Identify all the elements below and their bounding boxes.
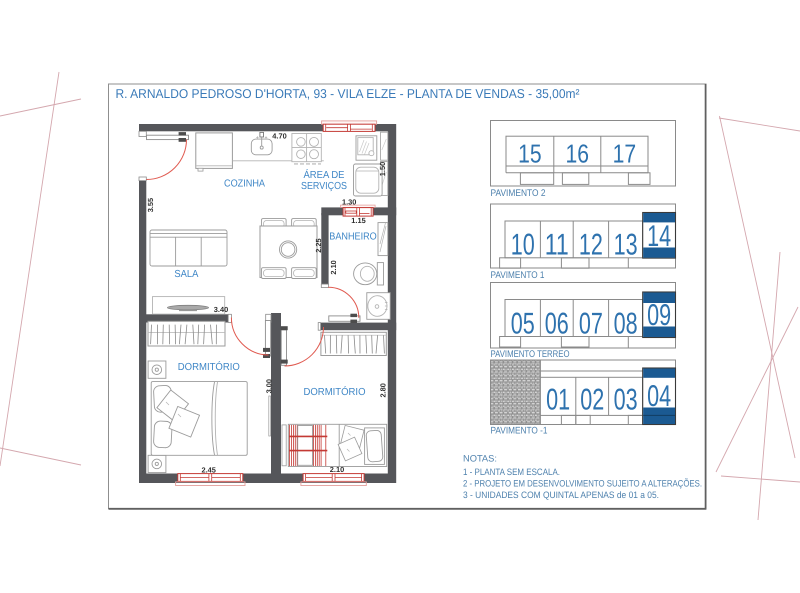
svg-text:4.70: 4.70: [272, 131, 286, 140]
svg-text:01: 01: [546, 383, 570, 416]
svg-text:1.15: 1.15: [351, 216, 365, 225]
svg-text:2 - PROJETO EM DESENVOLVIMENTO: 2 - PROJETO EM DESENVOLVIMENTO SUJEITO A…: [463, 478, 702, 489]
svg-text:2.25: 2.25: [314, 238, 323, 252]
svg-text:12: 12: [579, 228, 603, 261]
svg-text:1.50: 1.50: [378, 162, 387, 176]
svg-text:1 - PLANTA SEM ESCALA.: 1 - PLANTA SEM ESCALA.: [463, 467, 560, 477]
svg-text:15: 15: [518, 139, 542, 169]
svg-text:COZINHA: COZINHA: [224, 179, 265, 190]
svg-text:3.40: 3.40: [214, 305, 228, 314]
svg-text:02: 02: [580, 383, 604, 416]
svg-text:08: 08: [614, 308, 638, 341]
svg-text:2.10: 2.10: [330, 465, 344, 474]
svg-text:PAVIMENTO TERREO: PAVIMENTO TERREO: [491, 349, 570, 360]
svg-text:03: 03: [614, 383, 638, 416]
svg-text:1.30: 1.30: [342, 198, 356, 207]
svg-text:3 - UNIDADES COM QUINTAL APENA: 3 - UNIDADES COM QUINTAL APENAS de 01 a …: [463, 490, 659, 500]
svg-text:SERVIÇOS: SERVIÇOS: [301, 181, 347, 192]
svg-text:16: 16: [566, 139, 590, 169]
svg-text:PAVIMENTO 1: PAVIMENTO 1: [491, 270, 545, 281]
svg-text:R. ARNALDO PEDROSO D'HORTA, 93: R. ARNALDO PEDROSO D'HORTA, 93 - VILA EL…: [116, 86, 581, 101]
svg-text:BANHEIRO: BANHEIRO: [329, 231, 377, 242]
svg-text:3.00: 3.00: [265, 379, 274, 393]
svg-text:2.80: 2.80: [378, 383, 387, 397]
svg-text:09: 09: [647, 299, 671, 332]
svg-text:17: 17: [613, 139, 637, 169]
svg-text:ÁREA DE: ÁREA DE: [304, 169, 345, 181]
svg-text:NOTAS:: NOTAS:: [463, 454, 497, 464]
svg-text:3.55: 3.55: [146, 198, 155, 212]
svg-text:2.10: 2.10: [329, 260, 338, 274]
svg-text:06: 06: [545, 308, 569, 341]
svg-text:11: 11: [545, 228, 569, 261]
svg-text:SALA: SALA: [174, 269, 198, 280]
svg-text:14: 14: [647, 220, 671, 253]
svg-text:DORMITÓRIO: DORMITÓRIO: [178, 361, 240, 373]
svg-text:05: 05: [511, 308, 535, 341]
svg-text:04: 04: [647, 380, 671, 413]
svg-text:13: 13: [614, 228, 638, 261]
svg-text:2.45: 2.45: [202, 466, 216, 475]
svg-text:PAVIMENTO -1: PAVIMENTO -1: [491, 425, 548, 436]
svg-text:PAVIMENTO 2: PAVIMENTO 2: [491, 188, 546, 199]
svg-text:10: 10: [511, 228, 535, 261]
svg-text:DORMITÓRIO: DORMITÓRIO: [304, 386, 366, 398]
svg-text:07: 07: [579, 308, 603, 341]
